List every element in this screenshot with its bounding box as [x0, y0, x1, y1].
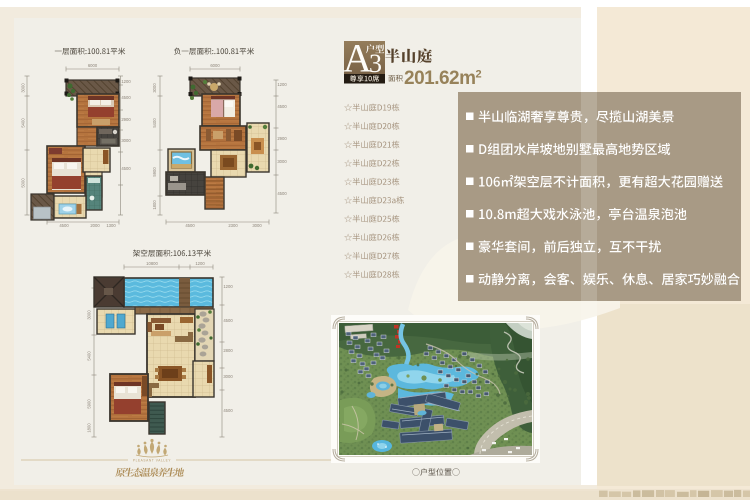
- svg-text:1800: 1800: [152, 200, 157, 210]
- svg-text:5900: 5900: [87, 399, 92, 409]
- svg-text:2000: 2000: [90, 223, 100, 228]
- svg-text:3000: 3000: [87, 310, 92, 320]
- svg-text:PLEASANT VALLEY: PLEASANT VALLEY: [133, 459, 172, 463]
- svg-text:4500: 4500: [223, 408, 233, 413]
- svg-text:5400: 5400: [87, 351, 92, 361]
- svg-text:4500: 4500: [277, 191, 287, 196]
- svg-text:3000: 3000: [21, 83, 26, 93]
- svg-text:10800: 10800: [146, 261, 158, 266]
- svg-text:201.62m2: 201.62m2: [404, 68, 482, 89]
- svg-text:3: 3: [369, 49, 382, 78]
- svg-text:1200: 1200: [277, 82, 287, 87]
- svg-text:1200: 1200: [223, 284, 233, 289]
- svg-text:1200: 1200: [195, 261, 205, 266]
- svg-text:1300: 1300: [106, 223, 116, 228]
- svg-text:6000: 6000: [88, 63, 98, 68]
- svg-text:4500: 4500: [277, 104, 287, 109]
- svg-text:5900: 5900: [152, 167, 157, 177]
- svg-text:4500: 4500: [121, 166, 131, 171]
- svg-text:4500: 4500: [185, 223, 195, 228]
- svg-text:2300: 2300: [228, 223, 238, 228]
- svg-text:2900: 2900: [121, 117, 131, 122]
- svg-text:3000: 3000: [252, 223, 262, 228]
- svg-text:A: A: [343, 36, 372, 81]
- svg-text:3000: 3000: [152, 83, 157, 93]
- svg-text:4500: 4500: [121, 95, 131, 100]
- svg-text:3000: 3000: [277, 159, 287, 164]
- svg-text:5400: 5400: [152, 118, 157, 128]
- svg-text:4500: 4500: [223, 318, 233, 323]
- svg-text:1800: 1800: [87, 423, 92, 433]
- svg-text:3000: 3000: [223, 374, 233, 379]
- svg-text:5400: 5400: [21, 118, 26, 128]
- svg-text:5000: 5000: [21, 178, 26, 188]
- svg-text:1200: 1200: [121, 79, 131, 84]
- svg-text:4500: 4500: [59, 223, 69, 228]
- svg-text:2900: 2900: [277, 136, 287, 141]
- svg-text:3000: 3000: [121, 138, 131, 143]
- svg-text:2800: 2800: [223, 348, 233, 353]
- svg-text:6000: 6000: [210, 63, 220, 68]
